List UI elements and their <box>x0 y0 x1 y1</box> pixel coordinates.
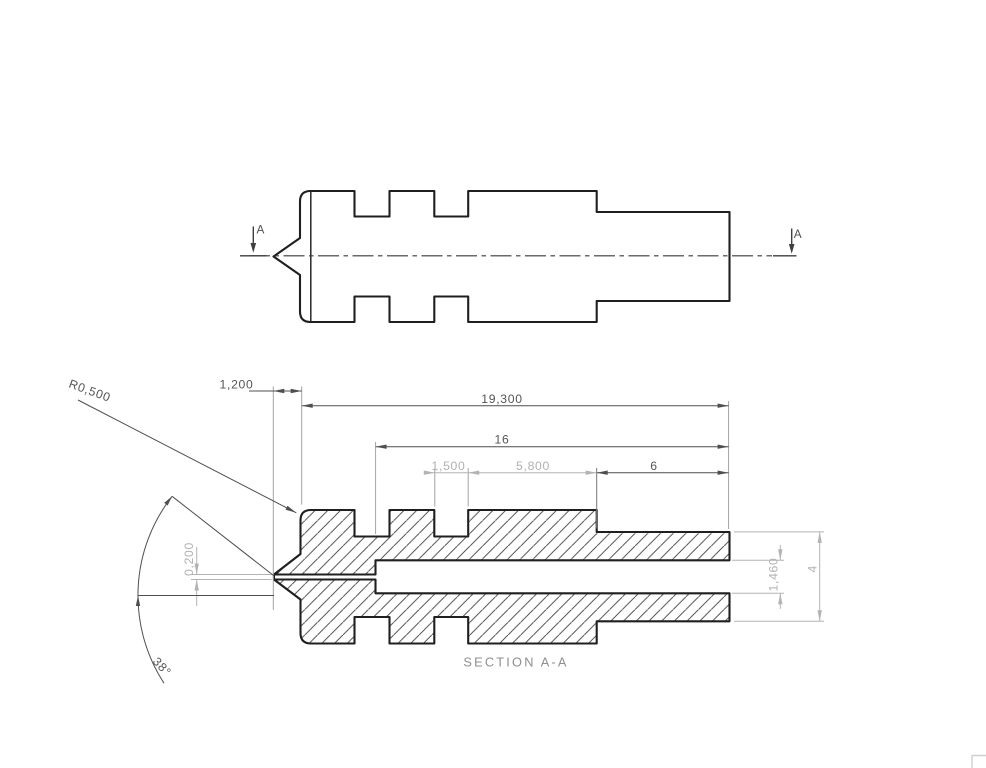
angle-dim: 38° <box>136 496 274 683</box>
cut-letter-left: A <box>257 223 265 237</box>
top-view <box>249 191 772 322</box>
svg-text:R0,500: R0,500 <box>67 377 113 405</box>
dim-groove-width: 1,500 <box>424 459 597 507</box>
sheet-corner-mark <box>972 756 986 768</box>
cut-letter-right: A <box>794 227 802 241</box>
svg-text:5,800: 5,800 <box>516 459 550 473</box>
radius-callout: R0,500 <box>67 377 296 513</box>
section-cut-arrow-right: A <box>773 227 802 256</box>
svg-text:19,300: 19,300 <box>481 392 522 406</box>
dim-shank-length: 6 <box>597 459 729 529</box>
svg-text:4: 4 <box>806 565 820 572</box>
dim-orifice: 0,200 <box>182 542 272 606</box>
svg-text:38°: 38° <box>150 654 174 679</box>
drawing-sheet: A A 1,200 19,300 16 <box>0 0 986 768</box>
section-lower-half <box>274 580 730 644</box>
top-view-outline <box>274 191 730 322</box>
section-upper-half <box>274 510 730 575</box>
svg-text:1,460: 1,460 <box>767 558 781 592</box>
svg-text:1,500: 1,500 <box>432 459 466 473</box>
section-label: SECTION A-A <box>463 655 568 670</box>
svg-text:16: 16 <box>495 433 510 447</box>
svg-text:1,200: 1,200 <box>220 378 254 392</box>
svg-text:6: 6 <box>650 459 657 473</box>
section-cut-arrow-left: A <box>240 223 267 256</box>
section-view <box>274 510 730 644</box>
cut-arrow-down-icon <box>789 244 795 254</box>
drawing-canvas: A A 1,200 19,300 16 <box>0 0 986 768</box>
cut-arrow-down-icon <box>251 243 257 253</box>
dim-bore-dia: 1,460 <box>732 545 784 609</box>
svg-text:0,200: 0,200 <box>182 542 196 576</box>
